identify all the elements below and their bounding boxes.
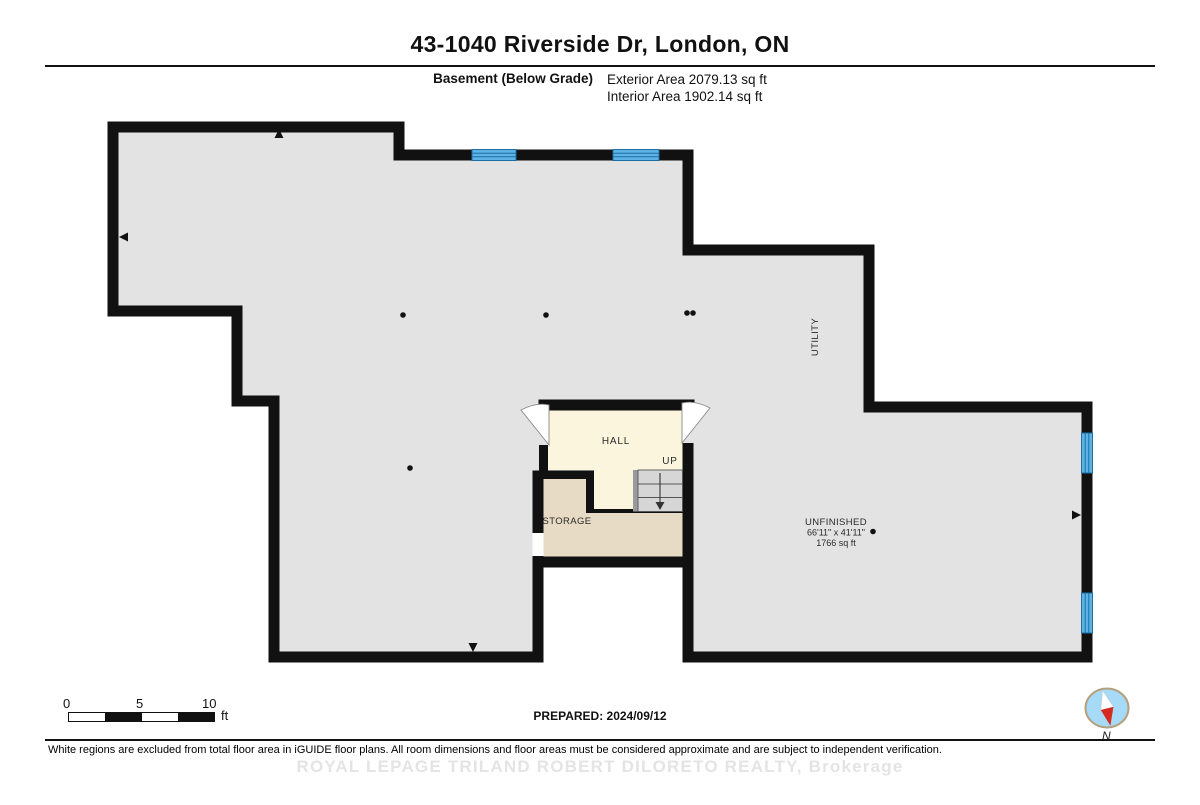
floorplan-drawing: HALL UP STORAGE UTILITY UNFINISHED 66'11… [0, 0, 1200, 805]
building-outline [113, 127, 1087, 657]
window-right-2 [1082, 593, 1093, 633]
window-right-1 [1082, 433, 1093, 473]
storage-wall-opening [533, 533, 544, 556]
brokerage-watermark: ROYAL LEPAGE TRILAND ROBERT DILORETO REA… [0, 757, 1200, 777]
disclaimer-text: White regions are excluded from total fl… [48, 744, 942, 756]
unfinished-dimensions: 66'11" x 41'11" [807, 528, 865, 538]
window-top-1 [472, 150, 516, 161]
unfinished-name: UNFINISHED [805, 517, 867, 528]
up-label: UP [662, 456, 678, 467]
prepared-date: PREPARED: 2024/09/12 [0, 709, 1200, 723]
hall-label: HALL [602, 436, 630, 447]
staircase [633, 470, 683, 512]
utility-label: UTILITY [810, 318, 821, 356]
storage-label: STORAGE [542, 516, 591, 527]
compass-icon: N [1080, 678, 1136, 744]
footer-divider [45, 739, 1155, 741]
unfinished-area: 1766 sq ft [816, 538, 856, 548]
window-top-2 [613, 150, 659, 161]
floorplan-page: 43-1040 Riverside Dr, London, ON Basemen… [0, 0, 1200, 805]
